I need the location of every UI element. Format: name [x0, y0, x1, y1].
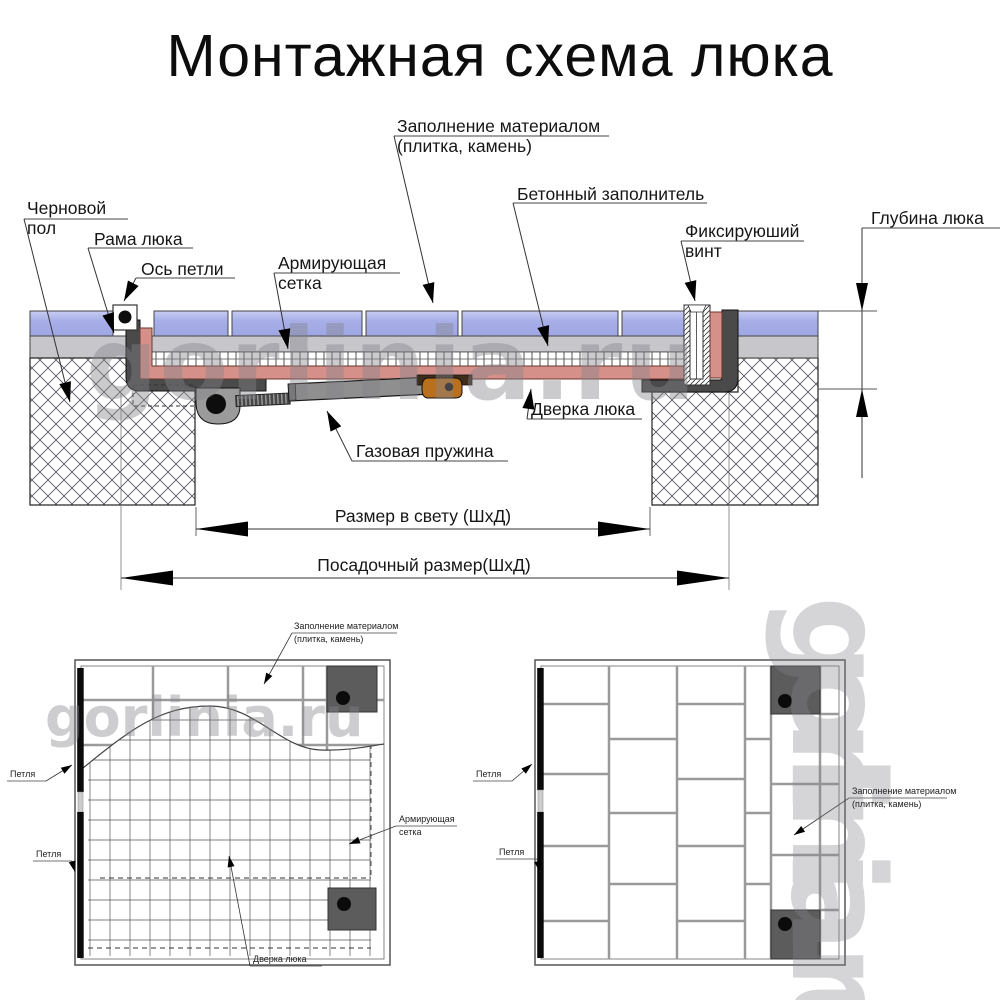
plan-view-left — [7, 633, 457, 966]
label-gas-spring: Газовая пружина — [356, 441, 494, 461]
door-pan-right — [710, 312, 722, 378]
label-fill-material: Заполнение материалом(плитка, камень) — [397, 116, 600, 156]
hinge-axis-dot — [119, 311, 132, 324]
label-hatch-frame: Рама люка — [94, 229, 183, 249]
tiles-row — [154, 311, 684, 336]
reinforcing-mesh-band — [152, 352, 684, 366]
plan-left-hinge-bars — [77, 668, 84, 958]
hinge-axis — [113, 305, 137, 330]
fixing-screw — [684, 305, 710, 385]
plan-left-label-hinge-bottom: Петля — [36, 849, 61, 860]
plan-right-label-fill: Заполнение материалом(плитка, камень) — [852, 786, 956, 809]
lock-square-top-right — [771, 666, 820, 714]
plan-right-label-hinge-bottom: Петля — [499, 847, 524, 858]
plan-right-label-hinge-top: Петля — [476, 769, 501, 780]
plan-left-label-fill: Заполнение материалом(плитка, камень) — [294, 621, 398, 644]
lock-square-bottom — [328, 888, 376, 930]
lock-square-bottom-right — [771, 910, 820, 959]
label-reinforcing-mesh: Армирующаясетка — [278, 253, 386, 293]
label-hinge-axis: Ось петли — [141, 259, 224, 279]
label-hatch-door: Дверка люка — [531, 399, 635, 419]
page-title: Монтажная схема люка — [0, 22, 1000, 90]
label-hatch-depth: Глубина люка — [871, 208, 984, 228]
label-concrete-filler: Бетонный заполнитель — [517, 184, 704, 204]
label-clear-size: Размер в свету (ШхД) — [273, 506, 573, 526]
dimension-depth — [818, 228, 877, 478]
spring-bracket — [417, 375, 472, 398]
lock-square-top — [327, 666, 377, 712]
plan-view-right — [473, 660, 947, 965]
label-fixing-screw: Фиксируюшийвинт — [685, 221, 799, 261]
label-mount-size: Посадочный размер(ШхД) — [274, 555, 574, 575]
plan-left-label-mesh: Армирующаясетка — [399, 814, 455, 837]
diagram-page: gorlinia.ru gorlinia.ru gorlinia.ru Монт… — [0, 0, 1000, 1000]
plan-left-label-door: Дверка люка — [253, 954, 307, 965]
plan-left-label-hinge-top: Петля — [10, 769, 35, 780]
plan-right-hinge-bars — [537, 668, 544, 958]
hatch-door-layers — [150, 311, 684, 366]
hinge-bracket — [196, 388, 240, 424]
